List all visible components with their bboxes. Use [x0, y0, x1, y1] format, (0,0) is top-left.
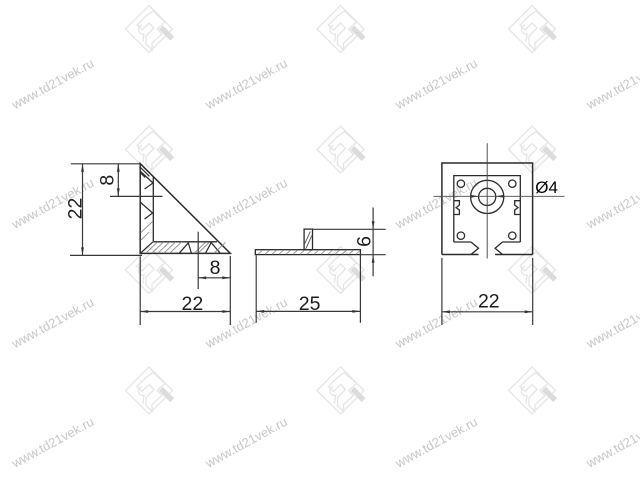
- svg-text:22: 22: [65, 198, 87, 220]
- svg-text:8: 8: [210, 257, 221, 279]
- svg-text:Ø4: Ø4: [535, 178, 558, 197]
- svg-text:22: 22: [182, 293, 204, 315]
- svg-text:6: 6: [354, 236, 376, 247]
- svg-text:25: 25: [299, 293, 321, 315]
- svg-text:22: 22: [478, 291, 500, 313]
- svg-text:8: 8: [97, 175, 119, 186]
